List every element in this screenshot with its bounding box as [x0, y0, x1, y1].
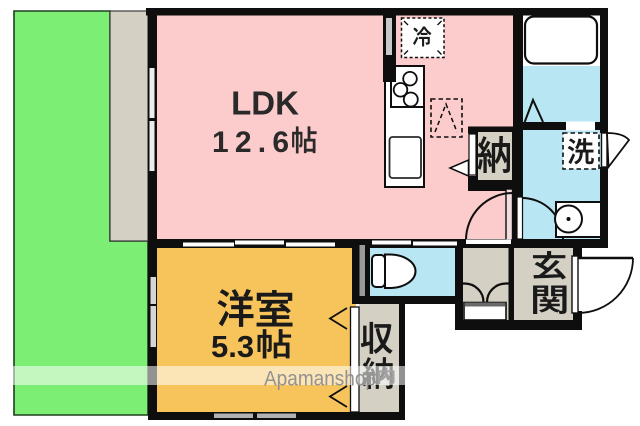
svg-text:12.6: 12.6: [212, 126, 289, 159]
svg-text:5.3: 5.3: [211, 329, 254, 364]
svg-text:Apamanshop: Apamanshop: [264, 367, 376, 391]
svg-text:LDK: LDK: [231, 85, 299, 122]
